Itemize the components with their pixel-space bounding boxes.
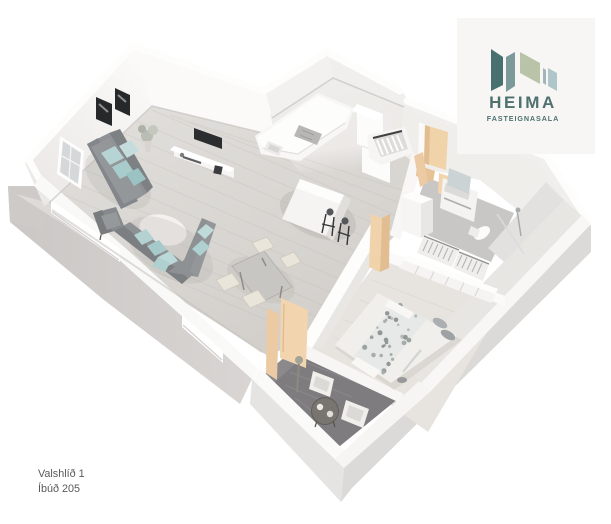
- svg-text:Valshlíð 1: Valshlíð 1: [38, 468, 85, 480]
- svg-text:HEIMA: HEIMA: [489, 93, 557, 112]
- svg-text:Íbúð 205: Íbúð 205: [38, 482, 80, 495]
- svg-text:FASTEIGNASALA: FASTEIGNASALA: [487, 114, 559, 123]
